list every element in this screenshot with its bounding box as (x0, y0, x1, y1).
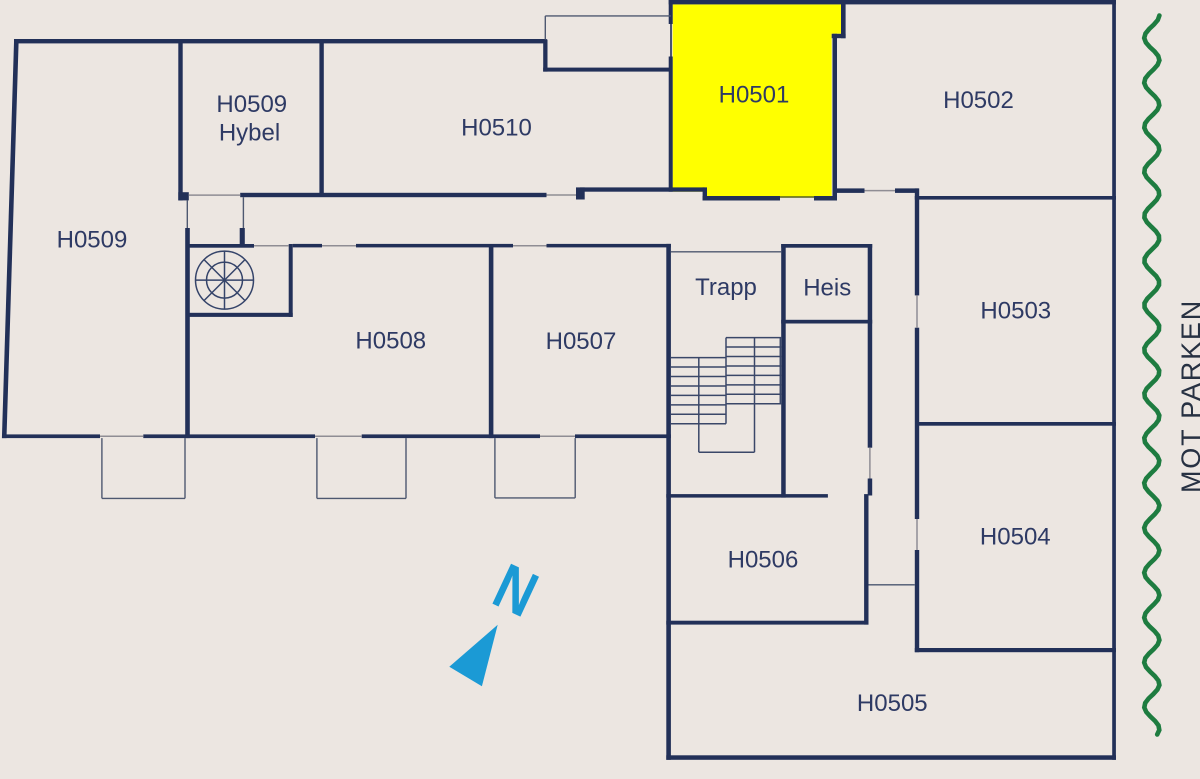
svg-text:H0506: H0506 (728, 546, 799, 573)
svg-text:H0507: H0507 (546, 328, 617, 355)
svg-text:H0502: H0502 (943, 87, 1014, 114)
svg-text:H0504: H0504 (980, 524, 1051, 551)
svg-text:H0509: H0509 (216, 91, 287, 118)
svg-text:MOT PARKEN: MOT PARKEN (1176, 299, 1200, 493)
svg-text:Hybel: Hybel (219, 119, 280, 146)
svg-text:H0510: H0510 (461, 115, 532, 142)
svg-text:H0505: H0505 (857, 690, 928, 717)
svg-text:H0508: H0508 (355, 328, 426, 355)
svg-text:Trapp: Trapp (695, 274, 757, 301)
svg-text:H0501: H0501 (719, 82, 790, 109)
svg-text:Heis: Heis (803, 274, 851, 301)
svg-text:H0503: H0503 (980, 298, 1051, 325)
svg-text:H0509: H0509 (57, 227, 128, 254)
